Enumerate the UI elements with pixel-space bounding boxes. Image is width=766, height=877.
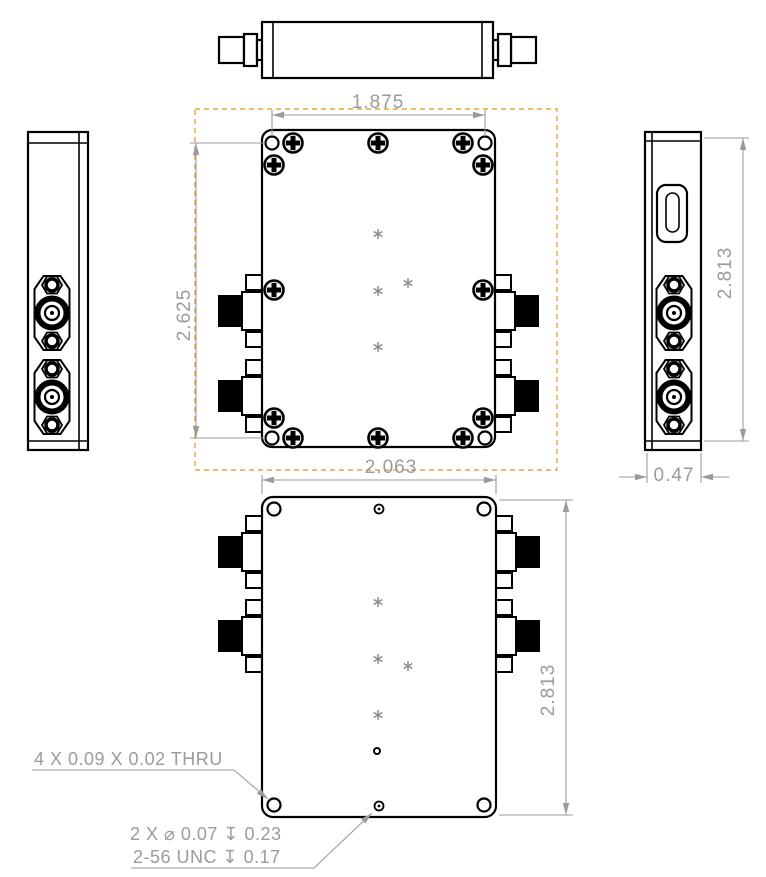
dim-bottom-width-label: 2.063 (365, 457, 418, 478)
connector-part (246, 275, 262, 290)
small-hole (374, 748, 380, 754)
connector-part (515, 381, 538, 411)
screw (454, 134, 473, 153)
connector-part (219, 296, 242, 326)
dim-front-width-label: 1.875 (352, 92, 405, 113)
connector-part (495, 360, 511, 375)
note-tapped-size-label: 2 X ⌀ 0.07 ↧ 0.23 (130, 824, 282, 844)
screw (284, 429, 303, 448)
nut-bore (46, 335, 58, 347)
corner-hole (479, 432, 492, 445)
screw (369, 134, 388, 153)
note-tapped-thread-label: 2-56 UNC ↧ 0.17 (133, 847, 281, 867)
screw (265, 409, 284, 428)
arrowhead (484, 477, 496, 483)
center-pin (672, 395, 676, 399)
connector-face (657, 276, 692, 350)
engineering-drawing: 1.875 2.625 2.063 2.813 0.47 2.813 4 X 0… (0, 0, 766, 877)
arrowhead (193, 426, 199, 438)
connector-part (495, 292, 515, 330)
connector-part (496, 516, 512, 531)
bottom-view (219, 497, 539, 817)
corner-hole (268, 799, 281, 812)
arrowhead (272, 112, 284, 118)
sma-thread-right (511, 37, 536, 63)
connector-part (496, 657, 512, 672)
housing-body (262, 497, 496, 817)
sma-nut-left (244, 34, 257, 66)
sma-connector (219, 275, 262, 347)
center-pin (50, 395, 54, 399)
sma-connector (496, 516, 539, 588)
connector-part (246, 600, 262, 615)
connector-part (246, 332, 262, 347)
connector-part (495, 377, 515, 415)
connector-part (242, 617, 262, 655)
connector-part (219, 381, 242, 411)
screw (265, 156, 284, 175)
corner-hole (478, 503, 491, 516)
dimension-side-height: 2.813 (704, 138, 749, 441)
corner-hole (478, 799, 491, 812)
tapped-hole-center (378, 508, 381, 511)
right-side-view (645, 132, 701, 450)
dimension-side-depth: 0.47 (619, 453, 729, 486)
housing-body (262, 22, 493, 78)
note-thru-holes-label: 4 X 0.09 X 0.02 THRU (34, 749, 223, 769)
arrowhead (473, 112, 485, 118)
sma-connector (219, 516, 262, 588)
sma-connector (219, 360, 262, 432)
screw (474, 409, 493, 428)
arrowhead (563, 803, 569, 815)
sma-connector (495, 275, 538, 347)
nut-bore (46, 279, 58, 291)
sma-connector (495, 360, 538, 432)
tapped-hole-center (378, 805, 381, 808)
connector-part (246, 657, 262, 672)
drawing-page: 1.875 2.625 2.063 2.813 0.47 2.813 4 X 0… (0, 0, 766, 877)
connector-part (246, 417, 262, 432)
corner-hole (479, 137, 492, 150)
connector-part (495, 275, 511, 290)
connector-part (495, 332, 511, 347)
connector-part (496, 617, 516, 655)
connector-part (496, 533, 516, 571)
connector-part (495, 417, 511, 432)
screw (474, 281, 493, 300)
note-tapped-holes: 2 X ⌀ 0.07 ↧ 0.23 2-56 UNC ↧ 0.17 (130, 813, 372, 868)
screw (284, 134, 303, 153)
connector-face (657, 360, 692, 434)
left-side-view (28, 132, 88, 450)
dim-side-depth-label: 0.47 (654, 465, 695, 486)
arrowhead (563, 500, 569, 512)
arrowhead (701, 474, 713, 480)
connector-face (35, 360, 70, 434)
arrowhead (193, 143, 199, 155)
screw (454, 429, 473, 448)
dim-front-height-label: 2.625 (174, 289, 195, 342)
connector-part (242, 533, 262, 571)
nut-bore (668, 419, 680, 431)
connector-part (242, 377, 262, 415)
connector-part (496, 600, 512, 615)
corner-hole (266, 432, 279, 445)
arrowhead (740, 138, 746, 150)
connector-part (242, 292, 262, 330)
arrowhead (262, 477, 274, 483)
screw (474, 156, 493, 175)
connector-part (246, 573, 262, 588)
connector-part (246, 516, 262, 531)
connector-part (219, 621, 242, 651)
dim-bottom-height-label: 2.813 (538, 664, 559, 717)
nut-bore (46, 419, 58, 431)
front-view (219, 130, 538, 448)
dim-side-height-label: 2.813 (715, 247, 736, 300)
connector-face (35, 276, 70, 350)
connector-part (246, 360, 262, 375)
arrowhead (740, 429, 746, 441)
nut-bore (668, 363, 680, 375)
center-pin (672, 311, 676, 315)
connector-part (515, 296, 538, 326)
corner-hole (266, 137, 279, 150)
sma-connector (219, 600, 262, 672)
nut-bore (668, 279, 680, 291)
connector-part (516, 537, 539, 567)
arrowhead (635, 474, 647, 480)
connector-part (219, 537, 242, 567)
screw (369, 429, 388, 448)
nut-bore (668, 335, 680, 347)
nut-bore (46, 363, 58, 375)
sma-thread-left (219, 37, 244, 63)
connector-part (516, 621, 539, 651)
top-profile-view (219, 22, 536, 78)
center-pin (50, 311, 54, 315)
connector-part (496, 573, 512, 588)
note-thru-holes: 4 X 0.09 X 0.02 THRU (32, 749, 268, 799)
corner-hole (268, 503, 281, 516)
dimension-bottom-width: 2.063 (262, 457, 496, 494)
screw (265, 281, 284, 300)
sma-nut-right (498, 34, 511, 66)
sma-connector (496, 600, 539, 672)
